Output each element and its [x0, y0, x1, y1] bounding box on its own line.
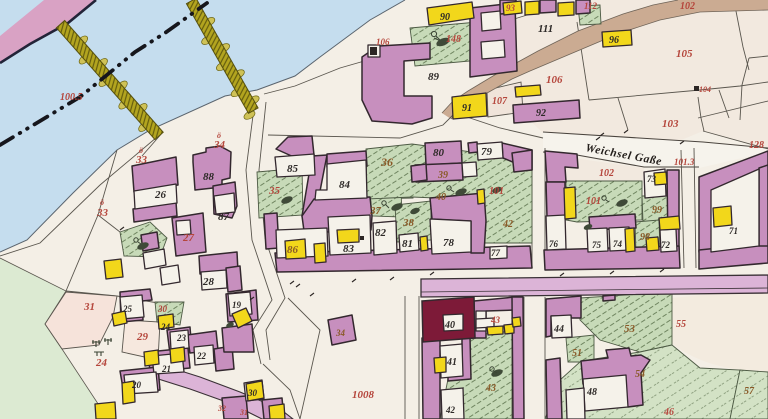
svg-text:46: 46 — [663, 407, 674, 418]
svg-text:32: 32 — [217, 404, 226, 413]
svg-text:92: 92 — [536, 108, 546, 119]
svg-text:101: 101 — [489, 186, 504, 197]
svg-text:ö: ö — [217, 131, 221, 140]
svg-text:88: 88 — [203, 171, 215, 183]
svg-text:51: 51 — [572, 348, 582, 359]
svg-text:39: 39 — [437, 170, 448, 181]
svg-text:148: 148 — [446, 34, 461, 45]
svg-text:86: 86 — [287, 244, 299, 256]
svg-text:37: 37 — [369, 205, 382, 217]
svg-text:38: 38 — [402, 217, 415, 229]
svg-text:19: 19 — [232, 300, 242, 310]
svg-text:90: 90 — [440, 12, 450, 23]
svg-text:33: 33 — [135, 154, 148, 166]
svg-text:40: 40 — [435, 192, 446, 203]
svg-text:87: 87 — [218, 211, 230, 223]
svg-text:73: 73 — [647, 174, 657, 184]
svg-text:80: 80 — [433, 147, 445, 159]
svg-text:27: 27 — [182, 232, 195, 244]
svg-text:77: 77 — [491, 248, 501, 258]
svg-text:103: 103 — [662, 118, 679, 130]
svg-text:34: 34 — [335, 328, 346, 338]
svg-text:99: 99 — [652, 205, 662, 216]
svg-text:89: 89 — [428, 71, 440, 83]
svg-text:22: 22 — [196, 351, 207, 361]
svg-text:43: 43 — [485, 383, 496, 394]
svg-text:23: 23 — [176, 333, 187, 343]
svg-text:72: 72 — [661, 240, 671, 250]
svg-text:54: 54 — [635, 369, 645, 380]
svg-text:85: 85 — [287, 163, 299, 175]
svg-text:93: 93 — [506, 3, 516, 13]
svg-text:75: 75 — [592, 240, 602, 250]
svg-text:31: 31 — [83, 301, 95, 313]
svg-text:84: 84 — [339, 179, 351, 191]
svg-text:42: 42 — [445, 405, 456, 415]
svg-text:24: 24 — [160, 322, 171, 332]
svg-text:25: 25 — [122, 304, 133, 314]
svg-text:ö: ö — [139, 146, 143, 155]
svg-text:34: 34 — [213, 139, 226, 151]
svg-text:33: 33 — [96, 207, 109, 219]
svg-text:91: 91 — [462, 103, 472, 114]
svg-text:100.5: 100.5 — [60, 92, 83, 103]
svg-text:43: 43 — [490, 315, 501, 325]
svg-text:40: 40 — [444, 320, 455, 331]
svg-text:82: 82 — [375, 227, 387, 239]
svg-text:98: 98 — [640, 232, 650, 243]
svg-text:101: 101 — [586, 196, 601, 207]
svg-text:74: 74 — [613, 239, 623, 249]
svg-text:57: 57 — [744, 386, 755, 397]
svg-text:96: 96 — [609, 35, 619, 46]
svg-text:44: 44 — [553, 324, 564, 335]
svg-text:71: 71 — [729, 226, 738, 236]
svg-text:106: 106 — [376, 37, 390, 47]
svg-text:78: 78 — [443, 237, 455, 249]
svg-text:48: 48 — [586, 387, 597, 398]
svg-text:102: 102 — [680, 1, 695, 12]
svg-text:30: 30 — [247, 388, 258, 398]
svg-text:106: 106 — [546, 74, 563, 86]
svg-text:36: 36 — [380, 155, 393, 169]
svg-text:53: 53 — [624, 323, 636, 335]
svg-text:81: 81 — [402, 238, 413, 250]
svg-text:104: 104 — [699, 85, 711, 94]
svg-text:ö: ö — [100, 198, 104, 207]
svg-text:28: 28 — [202, 276, 215, 288]
svg-text:1008: 1008 — [352, 389, 375, 401]
svg-text:128: 128 — [749, 140, 764, 151]
svg-text:107: 107 — [492, 96, 508, 107]
svg-text:30: 30 — [157, 304, 168, 314]
svg-text:83: 83 — [343, 243, 355, 255]
svg-text:101.3: 101.3 — [674, 157, 695, 167]
svg-text:21: 21 — [161, 364, 171, 374]
svg-text:26: 26 — [154, 189, 167, 201]
svg-text:24: 24 — [95, 357, 108, 369]
svg-text:102: 102 — [599, 168, 614, 179]
svg-text:111: 111 — [538, 23, 553, 35]
svg-text:112: 112 — [584, 1, 598, 11]
svg-text:41: 41 — [446, 357, 457, 368]
svg-text:29: 29 — [136, 331, 149, 343]
svg-text:35: 35 — [268, 185, 281, 197]
svg-text:76: 76 — [549, 239, 559, 249]
svg-text:31: 31 — [239, 408, 248, 417]
svg-text:79: 79 — [481, 146, 493, 158]
svg-text:105: 105 — [676, 48, 693, 60]
svg-text:55: 55 — [676, 319, 686, 330]
svg-text:20: 20 — [131, 380, 142, 390]
svg-text:42: 42 — [502, 219, 513, 230]
